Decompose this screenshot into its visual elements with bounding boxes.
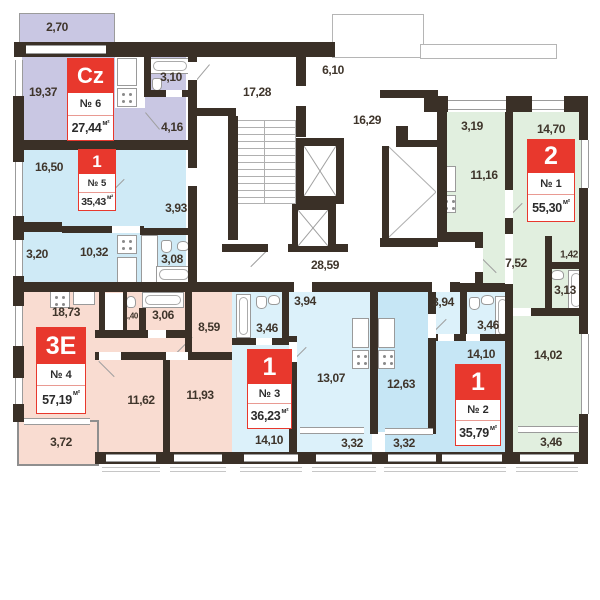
room-area-label: 14,02: [534, 348, 562, 362]
apartment-tag-5: 1 № 5 35,43м²: [78, 149, 116, 211]
elevator-shaft: [292, 204, 336, 252]
window: [15, 162, 23, 216]
door-opening: [428, 314, 436, 338]
wall: [163, 360, 170, 454]
wall: [424, 96, 448, 112]
wall: [505, 112, 513, 460]
window: [532, 100, 564, 110]
toilet: [256, 296, 267, 309]
wall: [382, 146, 389, 243]
door-opening: [432, 282, 450, 292]
bathtub: [236, 294, 251, 338]
apartment-area: 55,30м²: [528, 195, 574, 221]
area-value: 36,23: [251, 409, 281, 423]
room-area-label: 14,70: [537, 122, 565, 136]
area-value: 55,30: [532, 201, 562, 215]
room-area-label: 10,32: [80, 245, 108, 259]
wall: [545, 268, 552, 312]
room-area-label: 14,10: [255, 433, 283, 447]
room-area-label: 16,29: [353, 113, 381, 127]
area-unit: м²: [102, 116, 109, 127]
door-opening: [166, 352, 188, 360]
apartment-type: 2: [528, 140, 574, 173]
wall: [564, 96, 588, 112]
room-area-label: 3,94: [294, 294, 316, 308]
door-opening: [112, 226, 140, 233]
elevator-cab: [304, 146, 336, 196]
room-area-label: 3,06: [152, 308, 174, 322]
wall: [579, 112, 588, 140]
apartment-number: № 3: [248, 384, 291, 404]
wall: [14, 222, 62, 232]
wall: [13, 282, 232, 292]
room-area-label: 3,46: [256, 321, 278, 335]
wall: [396, 140, 437, 147]
apartment-tag-6: Cz № 6 27,44м²: [67, 58, 114, 141]
window: [15, 240, 23, 276]
wall: [13, 346, 24, 378]
window-sill: [240, 467, 302, 472]
window-sill: [516, 467, 578, 472]
window-sill: [312, 467, 376, 472]
apartment-type: 1: [79, 150, 115, 174]
window: [106, 454, 156, 462]
wall: [228, 116, 238, 240]
door-swing: [250, 251, 266, 267]
apartment-area: 57,19м²: [37, 386, 85, 413]
kitchen-sink: [73, 291, 95, 305]
room-area-label: 28,59: [311, 258, 339, 272]
room-area-label: 3,72: [50, 435, 72, 449]
window: [442, 454, 502, 462]
window: [581, 334, 589, 414]
window-sill: [384, 467, 440, 472]
roof-ledge: [332, 14, 424, 58]
wall: [95, 330, 187, 338]
door-opening: [438, 334, 454, 341]
door-opening: [166, 90, 182, 97]
stove: [117, 88, 137, 107]
door-opening: [294, 282, 312, 292]
room-area-label: 3,20: [26, 247, 48, 261]
wall: [192, 108, 236, 116]
apartment-tag-4: 3E № 4 57,19м²: [36, 327, 86, 414]
room-area-label: 3,46: [477, 318, 499, 332]
area-value: 57,19: [42, 393, 72, 407]
wall: [185, 292, 192, 354]
elevator-cab: [298, 210, 328, 246]
room-area-label: 11,93: [186, 388, 213, 402]
kitchen-counter: [378, 318, 395, 348]
wall: [506, 96, 532, 112]
door-opening: [188, 62, 197, 80]
stove-burners: [383, 355, 386, 358]
elevator-x: [304, 146, 336, 196]
balcony-window: [300, 427, 364, 434]
balcony-window: [385, 428, 433, 435]
window-sill: [102, 467, 160, 472]
room-area-label: 1,40: [124, 312, 138, 321]
window: [15, 378, 23, 404]
room-area-label: 18,73: [52, 305, 80, 319]
window: [520, 454, 574, 462]
window: [388, 454, 436, 462]
bathtub: [156, 266, 192, 283]
window: [26, 45, 106, 54]
wall: [460, 292, 467, 340]
lobby-leader-lines: [388, 146, 436, 238]
door-swing: [195, 64, 210, 81]
room-area-label: 3,19: [461, 119, 483, 133]
room-area-label: 13,07: [317, 371, 345, 385]
sink: [481, 295, 494, 305]
room-area-label: 16,50: [35, 160, 63, 174]
window-sill: [170, 467, 226, 472]
apartment-area: 35,43м²: [79, 193, 115, 210]
stove-burners: [122, 93, 125, 96]
area-unit: м²: [490, 421, 497, 432]
area-unit: м²: [563, 195, 570, 206]
door-opening: [148, 330, 166, 338]
wall: [140, 228, 192, 235]
wall: [370, 292, 378, 434]
room-area-label: 14,10: [467, 347, 495, 361]
door-opening: [513, 308, 531, 316]
apartment-number: № 6: [68, 93, 113, 116]
apartment-type: 1: [248, 350, 291, 384]
balcony-window: [518, 426, 578, 433]
window: [244, 454, 298, 462]
area-value: 35,43: [81, 196, 106, 208]
room-area-label: 7,52: [505, 256, 527, 270]
kitchen-counter: [352, 318, 369, 348]
sink: [268, 295, 280, 305]
window-sill: [438, 467, 506, 472]
room-area-label: 11,62: [127, 393, 154, 407]
apartment-type: 3E: [37, 328, 85, 364]
apartment-area: 27,44м²: [68, 116, 113, 140]
balcony-window: [24, 418, 90, 425]
door-opening: [99, 352, 121, 360]
elevator-shaft: [296, 138, 344, 204]
sink: [551, 270, 564, 280]
apartment-type: 1: [456, 365, 500, 400]
apartment-number: № 2: [456, 400, 500, 421]
window: [15, 60, 23, 96]
area-unit: м²: [107, 193, 113, 201]
apartment-number: № 1: [528, 173, 574, 195]
wall: [396, 126, 408, 140]
stove-burners: [122, 240, 125, 243]
room-area-label: 12,63: [387, 377, 415, 391]
room-area-label: 6,10: [322, 63, 344, 77]
wall: [380, 238, 438, 247]
apartment-tag-3: 1 № 3 36,23м²: [247, 349, 292, 429]
elevator-x: [298, 210, 328, 246]
apartment-number: № 5: [79, 174, 115, 193]
room-area-label: 19,37: [29, 85, 57, 99]
wall: [99, 292, 105, 332]
wall: [13, 96, 24, 162]
roof-ledge: [420, 44, 557, 59]
room-area-label: 3,08: [161, 252, 183, 266]
door-opening: [475, 248, 483, 272]
apartment-area: 35,79м²: [456, 421, 500, 445]
apartment-area: 36,23м²: [248, 404, 291, 428]
stove-burners: [55, 296, 58, 299]
wall: [232, 282, 460, 292]
door-opening: [256, 338, 272, 345]
door-opening: [466, 334, 480, 341]
bathtub: [142, 292, 184, 308]
area-unit: м²: [281, 404, 288, 415]
area-value: 35,79: [459, 426, 489, 440]
apt4-closet: [103, 293, 123, 331]
wall: [13, 404, 24, 422]
window: [581, 140, 589, 188]
window: [316, 454, 372, 462]
apartment-tag-1: 2 № 1 55,30м²: [527, 139, 575, 222]
apartment-tag-2: 1 № 2 35,79м²: [455, 364, 501, 446]
toilet: [469, 297, 480, 310]
room-area-label: 3,32: [393, 436, 415, 450]
room-area-label: 3,32: [341, 436, 363, 450]
stove: [352, 350, 369, 369]
door-opening: [296, 86, 306, 106]
room-area-label: 3,93: [165, 201, 187, 215]
sink: [126, 296, 136, 308]
room-area-label: 17,28: [243, 85, 271, 99]
window: [174, 454, 222, 462]
window: [448, 100, 506, 110]
staircase: [232, 120, 296, 204]
stove: [378, 350, 395, 369]
room-area-label: 8,59: [198, 320, 220, 334]
apartment-type: Cz: [68, 59, 113, 93]
area-value: 27,44: [72, 121, 102, 135]
stove: [117, 235, 137, 254]
room-area-label: 3,46: [540, 435, 562, 449]
apartment-number: № 4: [37, 364, 85, 386]
window: [15, 306, 23, 346]
floor-plan: 2,70 19,37 3,10 4,16 16,50 3,93 3,20 10,…: [0, 0, 600, 600]
room-area-label: 4,16: [161, 120, 183, 134]
room-area-label: 3,94: [432, 295, 454, 309]
staircase-divider: [264, 121, 265, 203]
wall: [437, 112, 447, 242]
room-area-label: 11,16: [470, 168, 497, 182]
room-area-label: 2,70: [46, 20, 68, 34]
stove-burners: [357, 355, 360, 358]
room-area-label: 3,13: [554, 283, 576, 297]
door-opening: [505, 190, 513, 218]
wall: [579, 188, 588, 334]
door-opening: [188, 168, 197, 186]
door-opening: [268, 244, 288, 252]
wall: [282, 292, 289, 338]
room-area-label: 1,42: [560, 250, 578, 261]
room-area-label: 3,10: [160, 70, 182, 84]
kitchen-counter: [117, 58, 137, 86]
area-unit: м²: [73, 386, 80, 397]
